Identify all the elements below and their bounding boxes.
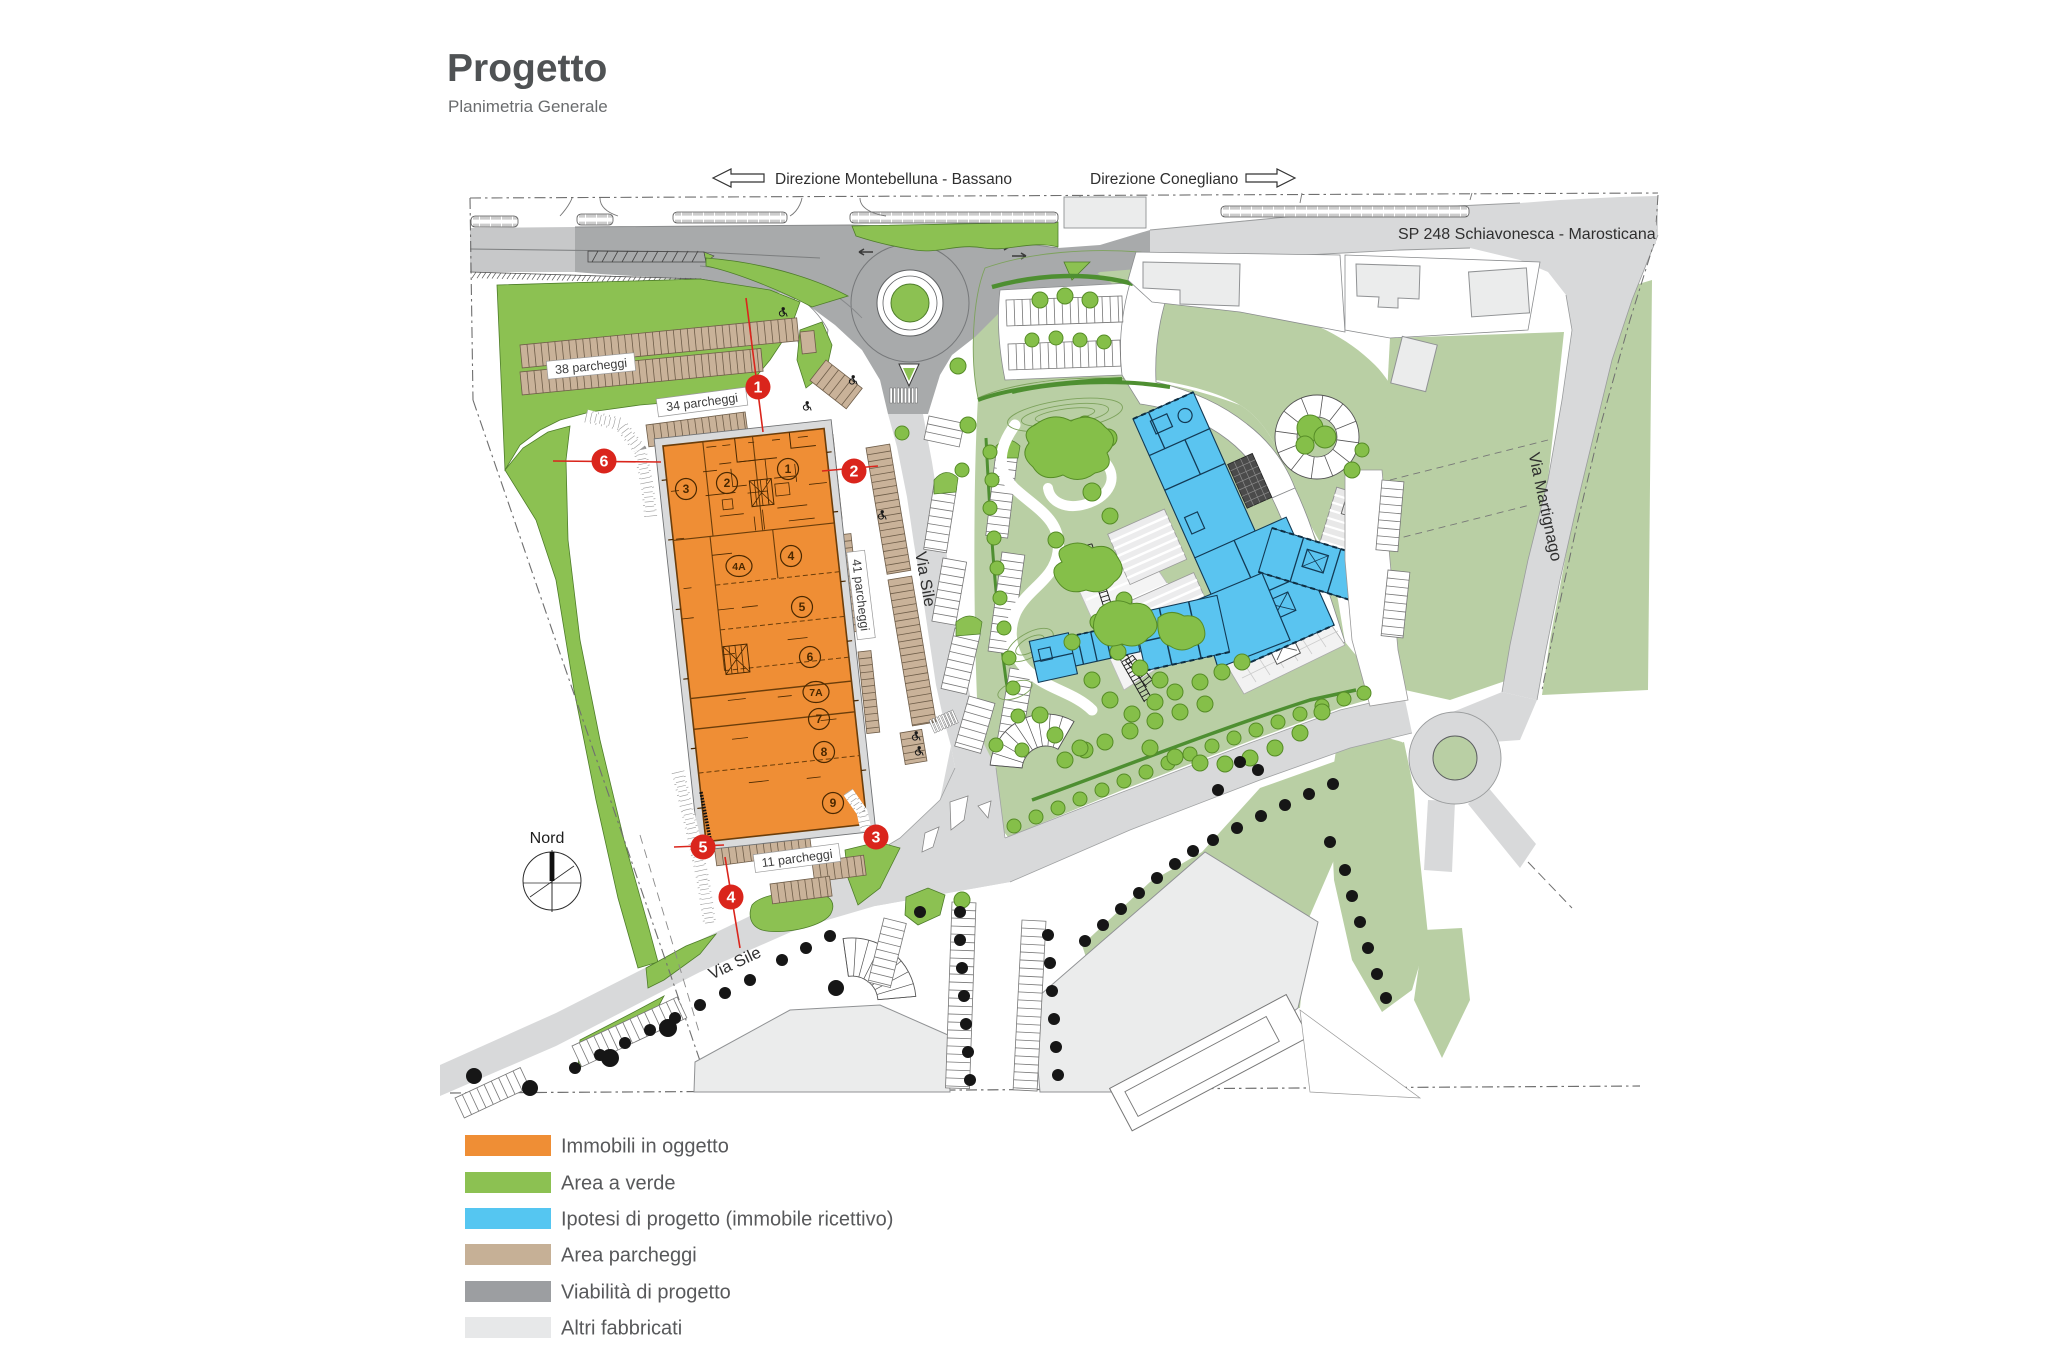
- svg-text:5: 5: [699, 840, 708, 857]
- svg-text:8: 8: [821, 745, 828, 759]
- svg-text:7: 7: [816, 712, 823, 726]
- svg-text:4: 4: [727, 890, 736, 907]
- svg-text:2: 2: [850, 464, 859, 481]
- svg-text:9: 9: [830, 796, 837, 810]
- svg-text:5: 5: [799, 600, 806, 614]
- svg-text:6: 6: [807, 650, 814, 664]
- svg-text:Area a verde: Area a verde: [561, 1173, 676, 1195]
- svg-text:1: 1: [754, 380, 763, 397]
- svg-text:Altri fabbricati: Altri fabbricati: [561, 1318, 682, 1340]
- svg-text:2: 2: [724, 476, 731, 490]
- svg-text:7A: 7A: [809, 687, 823, 699]
- svg-text:3: 3: [683, 482, 690, 496]
- svg-text:3: 3: [872, 830, 881, 847]
- svg-text:Progetto: Progetto: [447, 47, 607, 90]
- svg-text:Ipotesi di progetto (immobile: Ipotesi di progetto (immobile ricettivo): [561, 1209, 893, 1231]
- svg-text:Planimetria Generale: Planimetria Generale: [448, 97, 608, 116]
- svg-text:Immobili in oggetto: Immobili in oggetto: [561, 1136, 729, 1158]
- svg-text:6: 6: [600, 454, 609, 471]
- svg-text:Direzione Montebelluna - Bassa: Direzione Montebelluna - Bassano: [775, 171, 1012, 188]
- svg-text:SP 248 Schiavonesca - Marostic: SP 248 Schiavonesca - Marosticana: [1398, 226, 1656, 243]
- svg-text:Direzione Conegliano: Direzione Conegliano: [1090, 171, 1238, 188]
- svg-text:Area parcheggi: Area parcheggi: [561, 1245, 697, 1267]
- svg-text:Nord: Nord: [530, 830, 565, 847]
- svg-text:4: 4: [788, 549, 795, 563]
- svg-text:4A: 4A: [732, 561, 746, 573]
- svg-text:1: 1: [785, 462, 792, 476]
- svg-text:Viabilità di progetto: Viabilità di progetto: [561, 1282, 731, 1304]
